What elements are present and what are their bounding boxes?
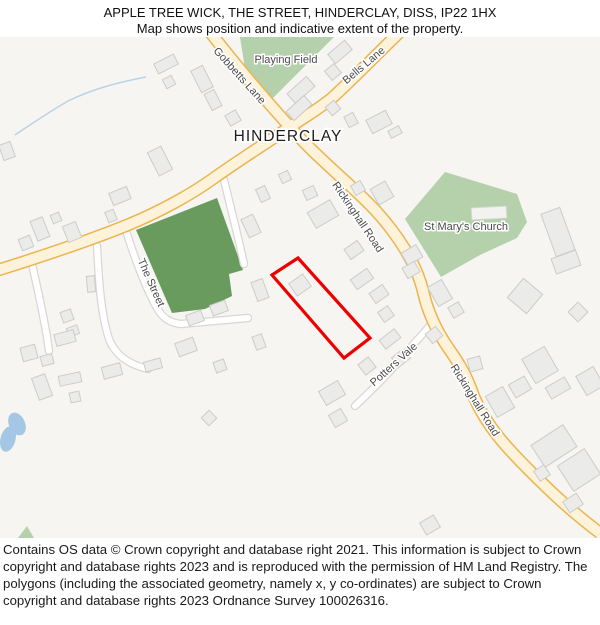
- property-address: APPLE TREE WICK, THE STREET, HINDERCLAY,…: [0, 5, 600, 21]
- map: Playing Field Gobbetts Lane Bells Lane H…: [0, 37, 600, 538]
- label-playing-field: Playing Field: [255, 54, 318, 66]
- map-subtitle: Map shows position and indicative extent…: [0, 21, 600, 37]
- building: [86, 276, 95, 293]
- building: [467, 356, 483, 372]
- label-hinderclay: HINDERCLAY: [234, 128, 343, 145]
- church-building: [471, 206, 507, 220]
- map-title: APPLE TREE WICK, THE STREET, HINDERCLAY,…: [0, 0, 600, 37]
- map-container: Playing Field Gobbetts Lane Bells Lane H…: [0, 37, 600, 538]
- building: [69, 391, 81, 403]
- copyright-text: Contains OS data © Crown copyright and d…: [0, 538, 600, 610]
- label-st-marys-church: St Mary's Church: [424, 221, 508, 233]
